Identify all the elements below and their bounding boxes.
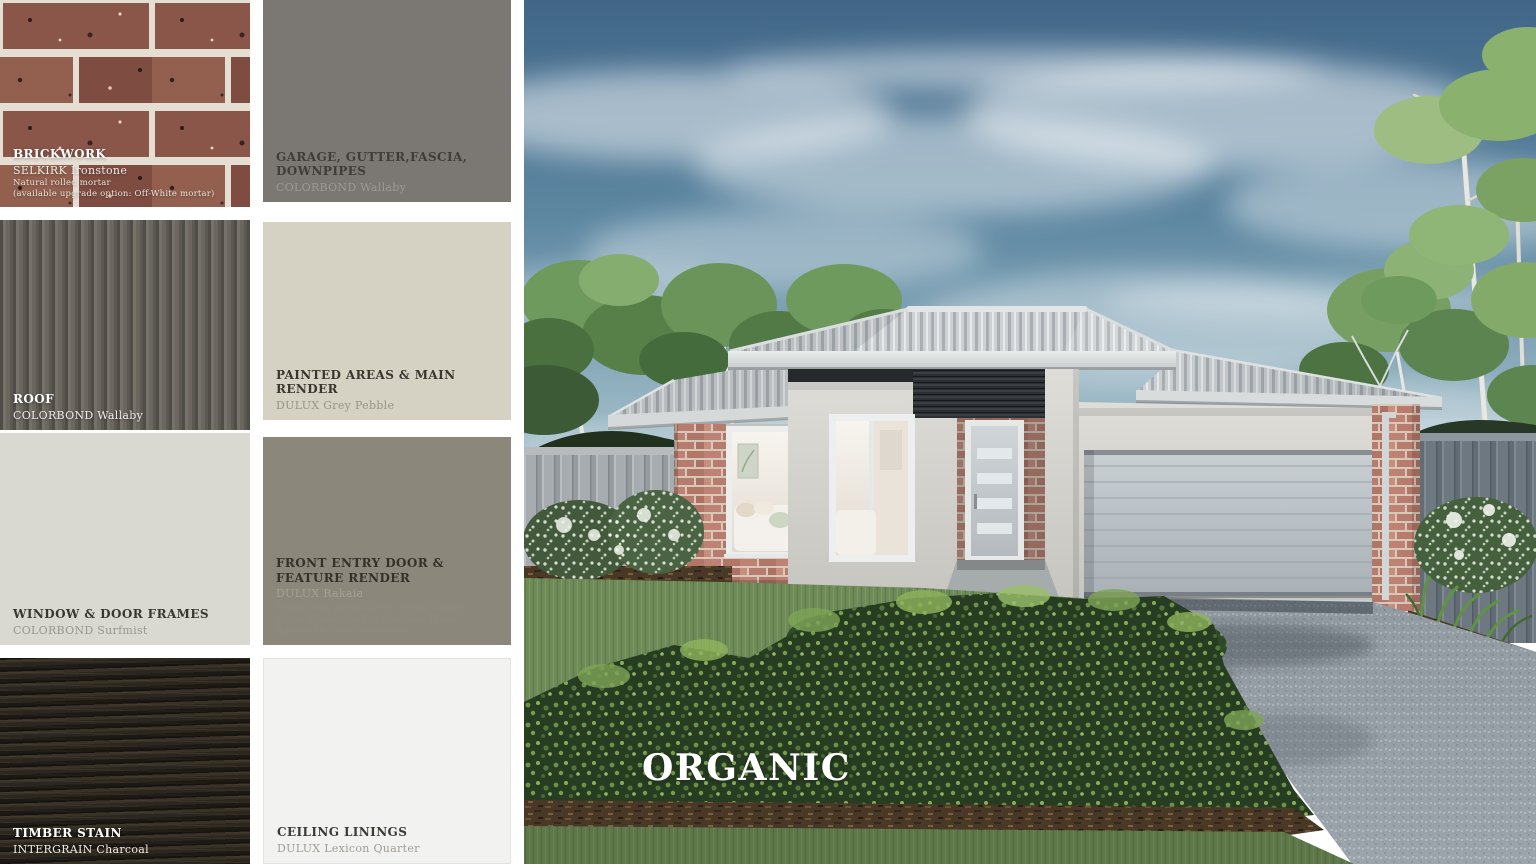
swatch-title: ROOF bbox=[13, 392, 242, 407]
swatch-subtitle: SELKIRK Ironstone bbox=[13, 164, 242, 177]
swatch-ceiling-linings: CEILING LININGS DULUX Lexicon Quarter bbox=[263, 658, 511, 864]
door-handle bbox=[974, 494, 977, 509]
swatch-note: Render only applicable to specific facad… bbox=[276, 603, 490, 637]
facade-render-scene bbox=[524, 0, 1536, 864]
swatch-title: TIMBER STAIN bbox=[13, 826, 242, 841]
swatch-timber-stain: TIMBER STAIN INTERGRAIN Charcoal bbox=[0, 658, 250, 864]
entry-recess bbox=[957, 418, 1045, 564]
swatch-garage-gutter-fascia-downpipes: GARAGE, GUTTER,FASCIA, DOWNPIPES COLORBO… bbox=[263, 0, 511, 202]
swatch-brickwork: BRICKWORK SELKIRK Ironstone Natural roll… bbox=[0, 0, 250, 207]
swatch-title: WINDOW & DOOR FRAMES bbox=[13, 607, 242, 622]
swatch-subtitle: INTERGRAIN Charcoal bbox=[13, 843, 242, 856]
entry-volume bbox=[788, 369, 1082, 614]
downpipe bbox=[1382, 418, 1389, 600]
scheme-name-label: ORGANIC bbox=[642, 749, 851, 789]
swatch-title: BRICKWORK bbox=[13, 147, 242, 162]
charcoal-feature-cladding bbox=[913, 369, 1045, 418]
left-wing-wall bbox=[674, 424, 804, 586]
facade-render-image bbox=[524, 0, 1536, 864]
swatch-title: GARAGE, GUTTER,FASCIA, DOWNPIPES bbox=[276, 150, 503, 179]
garage-door bbox=[1084, 450, 1373, 598]
swatch-title: CEILING LININGS bbox=[277, 825, 502, 840]
swatch-front-entry-door-feature-render: FRONT ENTRY DOOR & FEATURE RENDER DULUX … bbox=[263, 437, 511, 645]
white-flower-bush-right bbox=[1414, 497, 1536, 593]
garage-wing bbox=[1079, 402, 1420, 614]
foreground-lawn bbox=[524, 826, 1354, 864]
swatch-upgrade-note: (available upgrade option: Off-White mor… bbox=[13, 189, 242, 199]
swatch-window-door-frames: WINDOW & DOOR FRAMES COLORBOND Surfmist bbox=[0, 433, 250, 645]
front-door bbox=[965, 420, 1024, 560]
swatch-subtitle: DULUX Rakaia bbox=[276, 587, 503, 600]
bedroom-window-2 bbox=[829, 414, 915, 562]
swatch-title-line2: FEATURE RENDER bbox=[276, 571, 503, 586]
swatch-subtitle: COLORBOND Wallaby bbox=[13, 409, 242, 422]
swatch-title-line1: FRONT ENTRY DOOR & bbox=[276, 556, 503, 571]
swatch-title: PAINTED AREAS & MAIN RENDER bbox=[276, 368, 503, 397]
swatch-painted-areas-main-render: PAINTED AREAS & MAIN RENDER DULUX Grey P… bbox=[263, 222, 511, 420]
swatch-subtitle: DULUX Lexicon Quarter bbox=[277, 842, 502, 855]
swatch-roof: ROOF COLORBOND Wallaby bbox=[0, 220, 250, 430]
swatch-detail: Natural rolled mortar bbox=[13, 178, 242, 188]
swatch-subtitle: DULUX Grey Pebble bbox=[276, 399, 503, 412]
swatch-subtitle: COLORBOND Surfmist bbox=[13, 624, 242, 637]
swatch-subtitle: COLORBOND Wallaby bbox=[276, 181, 503, 194]
